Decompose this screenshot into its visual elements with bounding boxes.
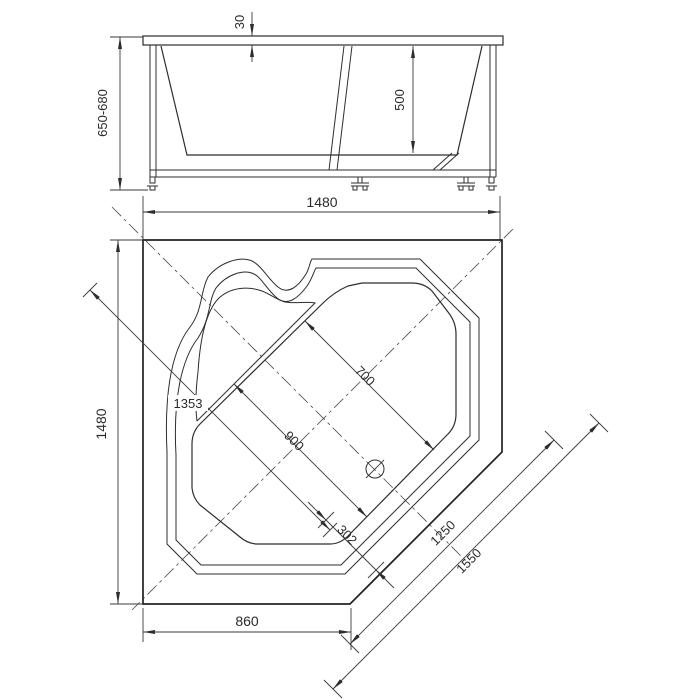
- dim-label-900: 900: [281, 428, 307, 454]
- dim-label-650-680: 650-680: [95, 89, 110, 137]
- dim-width: 1480: [143, 194, 500, 240]
- dim-label-302: 302: [334, 522, 360, 548]
- dim-label-1550: 1550: [453, 545, 484, 576]
- dim-label-1480-front: 1480: [306, 194, 337, 210]
- dim-bowl-upper: 700: [305, 321, 434, 450]
- drawing-sheet: 30 650-680 500 1480: [0, 0, 700, 700]
- frame-posts: [150, 45, 496, 177]
- bowl-outline: [192, 283, 456, 544]
- drain-icon: [366, 460, 384, 478]
- dim-label-1353: 1353: [174, 396, 203, 411]
- dim-rim-thickness: 30: [232, 12, 252, 62]
- plan-view: 1480 1353 700 900 302: [83, 207, 608, 698]
- dim-bowl-lower: 900: [234, 384, 367, 517]
- headrest-seat-curve: [196, 288, 315, 421]
- dim-label-700: 700: [352, 363, 378, 389]
- dim-drain-offset: 302: [308, 502, 394, 588]
- dim-front-inner: 1250: [341, 431, 563, 653]
- dim-label-860: 860: [235, 613, 259, 629]
- dim-front-outer: 1550: [324, 414, 608, 698]
- technical-drawing: 30 650-680 500 1480: [0, 0, 700, 700]
- front-view: 30 650-680 500 1480: [95, 12, 503, 240]
- dim-diagonal-depth: 1353: [83, 283, 337, 537]
- dim-label-30: 30: [232, 15, 247, 29]
- bathtub-outline: [143, 240, 502, 604]
- dim-height: 650-680: [95, 37, 148, 190]
- dim-label-1480-plan: 1480: [93, 408, 109, 439]
- dim-plan-side: 1480: [93, 240, 143, 604]
- adjustable-feet: [147, 177, 497, 190]
- bowl-profile: [161, 46, 482, 155]
- dim-inner-depth: 500: [392, 46, 413, 153]
- tub-rim: [143, 36, 503, 45]
- dim-label-500: 500: [392, 89, 407, 111]
- dim-bottom-edge: 860: [143, 608, 351, 650]
- centerline-main-diagonal: [112, 207, 468, 563]
